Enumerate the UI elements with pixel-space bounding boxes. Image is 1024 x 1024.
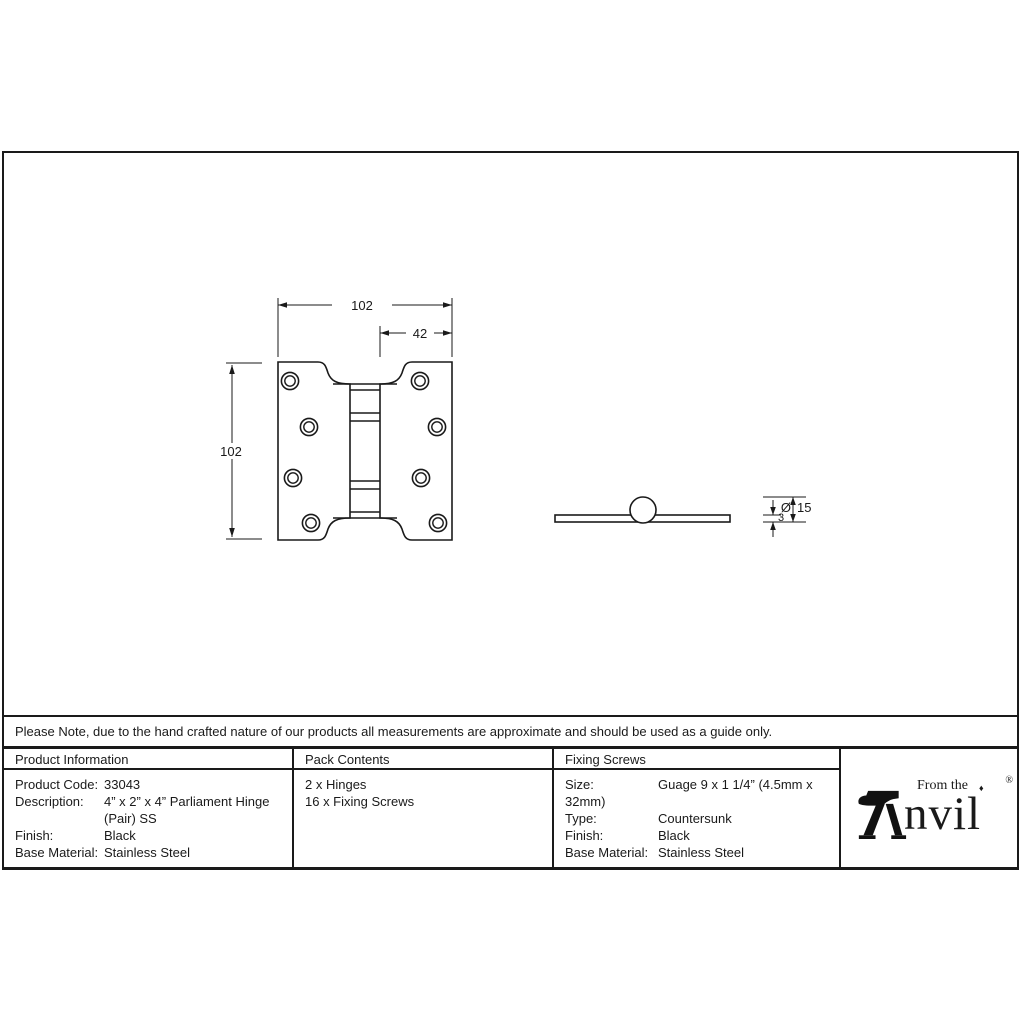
diamond-icon: ♦: [979, 783, 984, 793]
spec-sheet-frame: 102 42 102: [2, 151, 1019, 870]
screw-holes: [281, 372, 446, 531]
fixing-screws-header: Fixing Screws: [554, 749, 839, 770]
side-view: [555, 497, 730, 523]
table-row: Type:Countersunk: [565, 810, 839, 827]
brand-logo-cell: nvil From the ♦ ®: [841, 749, 1017, 867]
row-label: Size:: [565, 776, 658, 793]
row-value: (Pair) SS: [104, 811, 157, 826]
fixing-screws-column: Fixing Screws Size:Guage 9 x 1 1/4” (4.5…: [554, 749, 841, 867]
product-information-body: Product Code:33043 Description:4” x 2” x…: [4, 770, 292, 861]
pack-contents-header: Pack Contents: [294, 749, 552, 770]
row-value: Black: [104, 828, 136, 843]
hinge-drawing: 102 42 102: [4, 153, 1017, 715]
arrowhead: [380, 330, 389, 336]
row-label: Finish:: [565, 827, 658, 844]
pack-contents-body: 2 x Hinges 16 x Fixing Screws: [294, 770, 552, 810]
arrowhead: [790, 497, 796, 505]
dim-label-dia-value: 15: [797, 500, 811, 515]
arrowhead: [770, 522, 776, 530]
row-value: 33043: [104, 777, 140, 792]
pack-contents-column: Pack Contents 2 x Hinges 16 x Fixing Scr…: [294, 749, 554, 867]
row-label: Type:: [565, 810, 658, 827]
from-the-anvil-logo: nvil From the ♦ ®: [857, 775, 1009, 847]
table-row: Description:4” x 2” x 4” Parliament Hing…: [15, 793, 292, 810]
row-value: 4” x 2” x 4” Parliament Hinge: [104, 794, 269, 809]
arrowhead: [443, 302, 452, 308]
measurement-note-text: Please Note, due to the hand crafted nat…: [15, 724, 772, 739]
arrowhead: [790, 514, 796, 522]
row-value: Stainless Steel: [104, 845, 190, 860]
arrowhead: [229, 528, 235, 537]
row-label: Base Material:: [565, 844, 658, 861]
arrowhead: [770, 507, 776, 515]
hinge-knuckle: [333, 384, 397, 518]
fixing-screws-body: Size:Guage 9 x 1 1/4” (4.5mm x 32mm) Typ…: [554, 770, 839, 861]
dim-label-width: 102: [351, 298, 373, 313]
table-row: Finish:Black: [565, 827, 839, 844]
table-row: (Pair) SS: [15, 810, 292, 827]
arrowhead: [229, 365, 235, 374]
row-value: Countersunk: [658, 811, 732, 826]
row-label: Description:: [15, 793, 104, 810]
table-row: Base Material:Stainless Steel: [565, 844, 839, 861]
list-item: 2 x Hinges: [305, 776, 552, 793]
table-row: Size:Guage 9 x 1 1/4” (4.5mm x 32mm): [565, 776, 839, 810]
front-view: [278, 362, 452, 540]
arrowhead: [443, 330, 452, 336]
measurement-note-row: Please Note, due to the hand crafted nat…: [4, 715, 1017, 749]
dim-label-height: 102: [220, 444, 242, 459]
logo-name-text: nvil: [904, 791, 981, 838]
hinge-left-plate: [278, 362, 350, 540]
row-label: Finish:: [15, 827, 104, 844]
table-row: Finish:Black: [15, 827, 292, 844]
row-value: Black: [658, 828, 690, 843]
arrowhead: [278, 302, 287, 308]
row-value: Stainless Steel: [658, 845, 744, 860]
product-information-header: Product Information: [4, 749, 292, 770]
dim-label-thickness: 3: [778, 512, 784, 524]
dim-label-offset: 42: [413, 326, 427, 341]
product-information-column: Product Information Product Code:33043 D…: [4, 749, 294, 867]
spec-table: Product Information Product Code:33043 D…: [4, 749, 1017, 867]
row-label: Base Material:: [15, 844, 104, 861]
anvil-a-icon: [857, 787, 907, 841]
technical-drawing-area: 102 42 102: [4, 153, 1017, 715]
table-row: Base Material:Stainless Steel: [15, 844, 292, 861]
registered-trademark-symbol: ®: [1005, 775, 1013, 786]
row-label: Product Code:: [15, 776, 104, 793]
logo-tagline: From the: [917, 778, 968, 794]
list-item: 16 x Fixing Screws: [305, 793, 552, 810]
knuckle-barrel: [630, 497, 656, 523]
table-row: Product Code:33043: [15, 776, 292, 793]
